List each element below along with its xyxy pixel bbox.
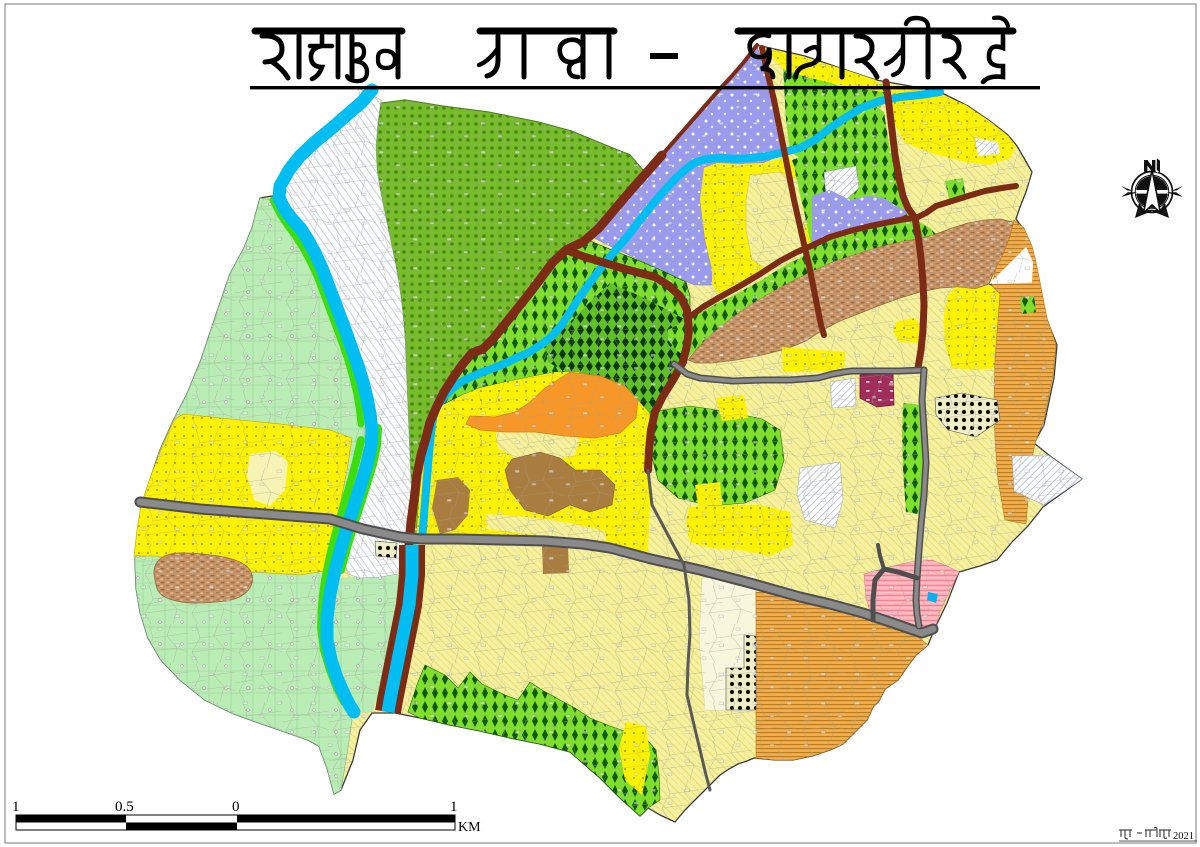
svg-text:0.5: 0.5 <box>115 799 134 815</box>
svg-text:2021: 2021 <box>1173 831 1194 842</box>
svg-text:1: 1 <box>12 799 20 815</box>
svg-text:0: 0 <box>232 799 240 815</box>
svg-text:KM: KM <box>458 820 481 835</box>
svg-text:1: 1 <box>450 799 458 815</box>
